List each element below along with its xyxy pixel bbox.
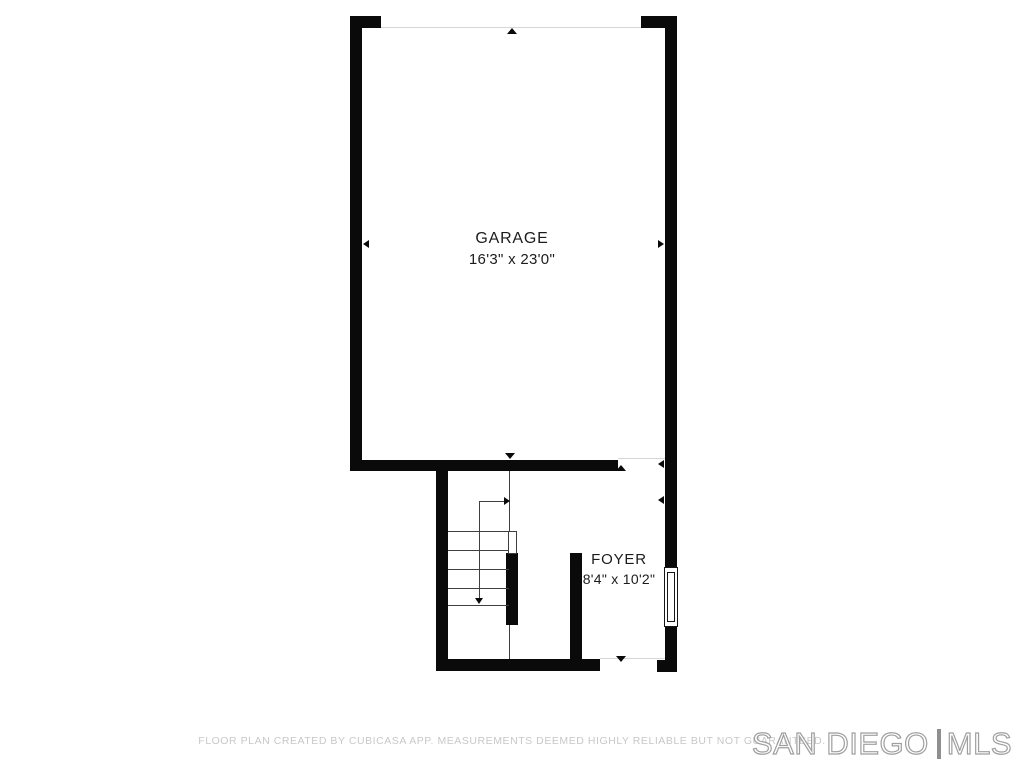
stair-walkline-horizontal <box>479 501 506 502</box>
stair-tread <box>448 531 517 532</box>
garage-width-marker-left-icon <box>363 240 369 248</box>
wall-stair-divider <box>506 553 518 625</box>
stair-center-line-lower <box>509 625 510 659</box>
floor-plan-canvas: GARAGE 16'3" x 23'0" FOYER 8'4" x 10'2" … <box>0 0 1024 768</box>
garage-dimensions: 16'3" x 23'0" <box>412 251 612 268</box>
stair-direction-arrow-down-icon <box>475 598 483 604</box>
wall-stair-left <box>436 471 448 671</box>
stair-tread <box>448 605 509 606</box>
foyer-name: FOYER <box>559 551 679 568</box>
stair-railing <box>508 531 517 554</box>
logo-divider-bar <box>937 729 941 759</box>
garage-name: GARAGE <box>412 230 612 248</box>
foyer-opening-marker-icon <box>616 465 626 471</box>
foyer-height-marker-top-icon <box>658 460 664 468</box>
stair-direction-arrow-right-icon <box>504 497 510 505</box>
logo-secondary-text: MLS <box>947 726 1012 762</box>
wall-garage-left <box>350 16 362 471</box>
sandiego-mls-logo: SAN DIEGO MLS <box>752 726 1012 762</box>
logo-primary-text: SAN DIEGO <box>752 726 929 762</box>
entry-door-marker-icon <box>616 656 626 662</box>
garage-width-marker-right-icon <box>658 240 664 248</box>
foyer-top-opening-line <box>618 458 665 459</box>
entry-opening-line <box>600 658 665 659</box>
garage-label: GARAGE 16'3" x 23'0" <box>412 230 612 268</box>
wall-bottom <box>436 659 600 671</box>
stair-walkline-vertical <box>479 501 480 599</box>
foyer-dimensions: 8'4" x 10'2" <box>559 571 679 587</box>
foyer-label: FOYER 8'4" x 10'2" <box>559 551 679 587</box>
garage-length-marker-icon <box>505 453 515 459</box>
foyer-height-marker-bottom-icon <box>658 496 664 504</box>
wall-garage-bottom <box>350 460 618 471</box>
wall-bottom-right-stub <box>657 660 677 672</box>
garage-door-marker-icon <box>507 28 517 34</box>
